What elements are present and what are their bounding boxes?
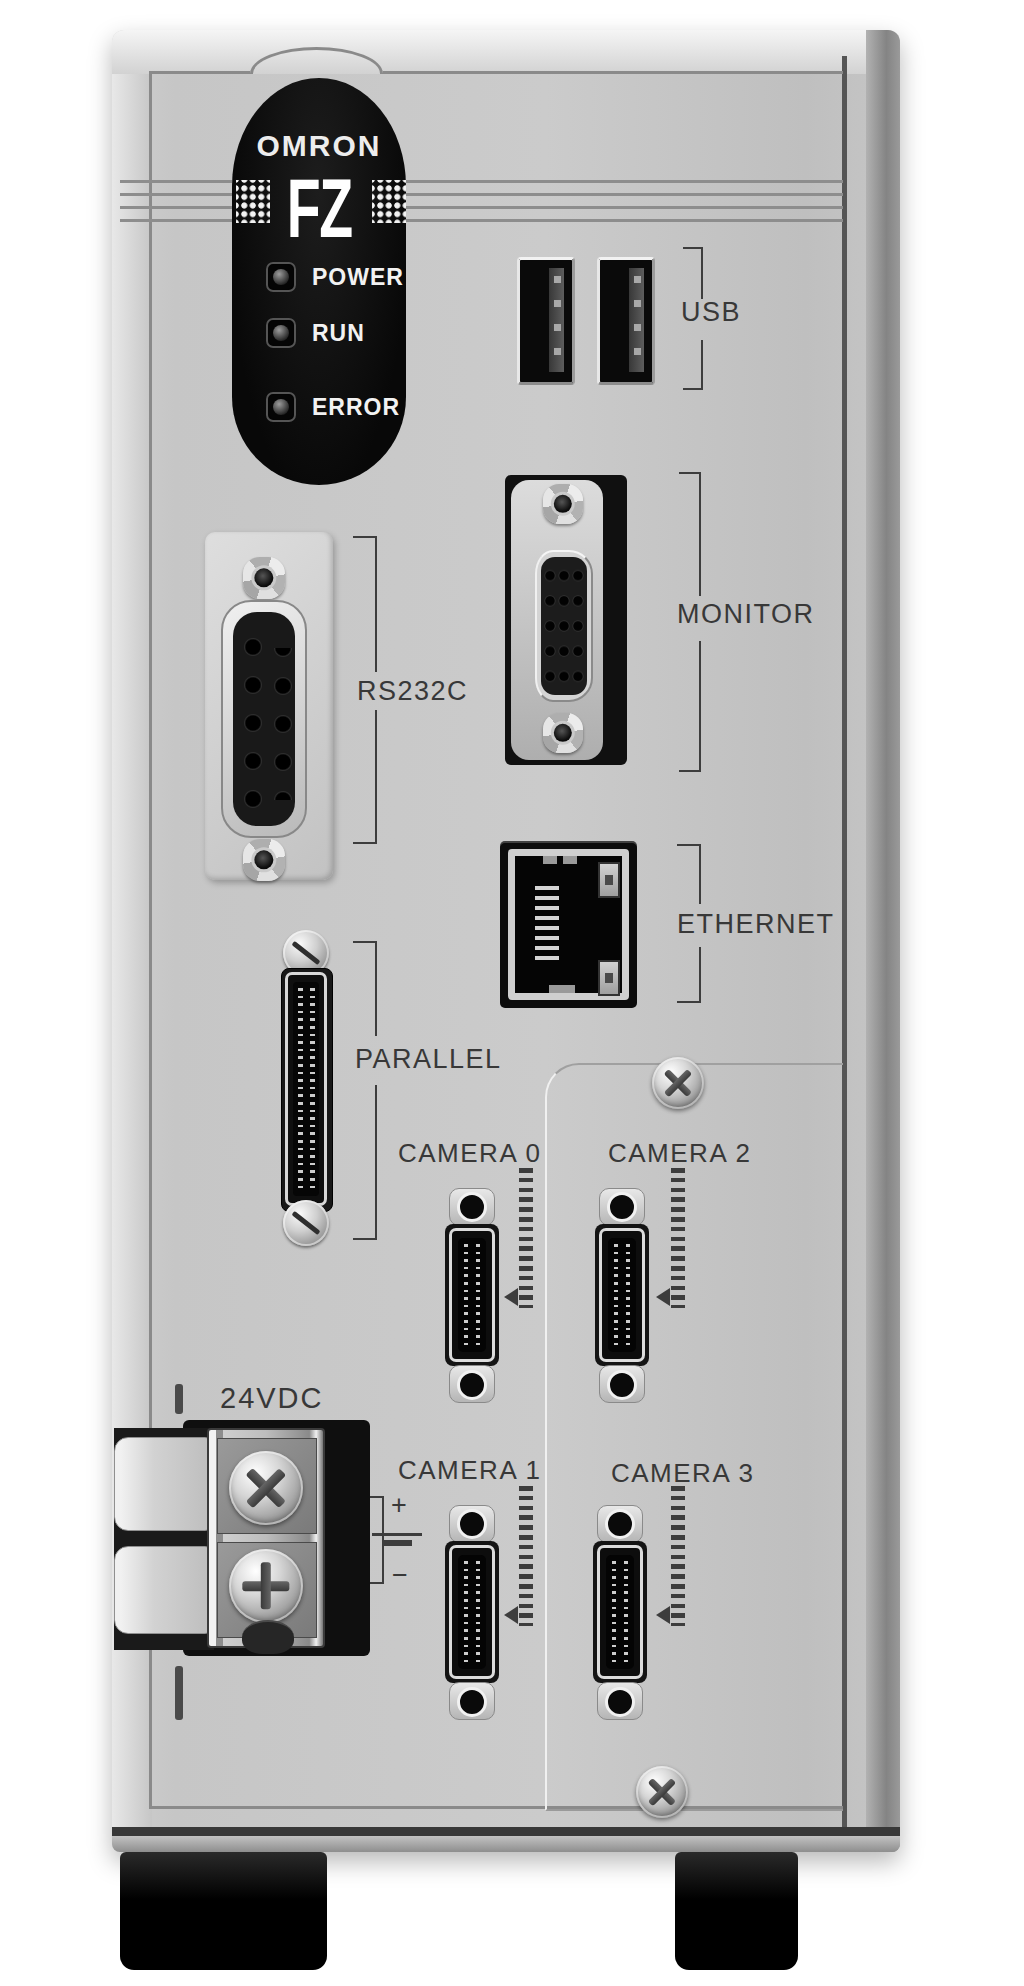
camera-2-label: CAMERA 2 — [608, 1140, 752, 1166]
connector-slot — [458, 1238, 486, 1352]
camera-1-connector — [445, 1505, 499, 1720]
hinge-tick — [175, 1666, 183, 1720]
alignment-arrow-icon — [504, 1288, 518, 1306]
error-led-icon — [266, 392, 296, 422]
rj45-led-dot — [605, 973, 613, 983]
connector-pins — [626, 1244, 630, 1346]
screw-hole-icon — [605, 1687, 635, 1717]
connector-slot — [608, 1238, 636, 1352]
screw-hole-icon — [457, 1192, 487, 1222]
vga-pin-holes — [543, 563, 585, 689]
rj45-latch-tab — [563, 856, 577, 864]
camera-plate — [545, 1063, 843, 1811]
hex-jackscrew-icon — [543, 484, 583, 524]
screw-hole-icon — [605, 1509, 635, 1539]
dot-pattern-icon — [236, 180, 270, 223]
battery-polarity-icon — [370, 1582, 384, 1584]
speed-line — [406, 180, 843, 183]
alignment-arrow-icon — [656, 1606, 670, 1624]
alignment-arrow-icon — [656, 1288, 670, 1306]
polarity-minus-label: − — [392, 1562, 409, 1589]
parallel-label: PARALLEL — [355, 1046, 502, 1073]
speed-line — [120, 180, 232, 183]
rs232c-bracket-tick — [353, 842, 377, 844]
chassis-top-band — [112, 30, 900, 74]
parallel-pins — [298, 988, 303, 1188]
ethernet-bracket-tick — [677, 1001, 701, 1003]
slot-screw-icon — [283, 1200, 329, 1246]
screw-hole-icon — [607, 1370, 637, 1400]
screw-hole-icon — [607, 1192, 637, 1222]
db9-pin-holes-col4 — [272, 648, 294, 800]
ethernet-bracket-line — [699, 947, 701, 1003]
rs232c-bracket-line — [375, 536, 377, 672]
photo-omron-fz-rear-panel: OMRON FZ POWER RUN ERROR USB MONITOR RS2… — [0, 0, 1024, 1986]
parallel-slot — [293, 982, 319, 1196]
run-led-label: RUN — [312, 322, 365, 345]
speed-line — [120, 206, 232, 209]
connector-pins — [476, 1561, 480, 1663]
usb-bracket-tick — [683, 388, 703, 390]
parallel-bracket-tick — [353, 941, 377, 943]
error-led-label: ERROR — [312, 396, 400, 419]
alignment-arrow-icon — [504, 1606, 518, 1624]
bottom-band — [112, 1836, 900, 1852]
battery-short-line-icon — [384, 1540, 412, 1546]
camera-3-connector — [593, 1505, 647, 1720]
rj45-pins — [535, 886, 559, 966]
rj45-led-dot — [605, 875, 613, 885]
camera-3-label: CAMERA 3 — [611, 1460, 755, 1486]
monitor-bracket-tick — [679, 770, 701, 772]
power-label: 24VDC — [220, 1384, 324, 1413]
usb-contacts — [554, 276, 561, 364]
hinge-block — [114, 1437, 213, 1531]
speed-line — [406, 219, 843, 222]
phillips-screw-icon — [652, 1057, 704, 1109]
connector-pins — [624, 1561, 628, 1663]
usb-contacts — [634, 276, 641, 364]
screw-hole-icon — [457, 1687, 487, 1717]
hex-jackscrew-icon — [543, 713, 583, 753]
speed-line — [406, 193, 843, 196]
monitor-bracket-line — [699, 641, 701, 772]
usb-bracket-line — [701, 247, 703, 299]
rs232c-label: RS232C — [357, 678, 468, 705]
parallel-bracket-tick — [353, 1238, 377, 1240]
rs232c-bracket-line — [375, 710, 377, 844]
power-led-icon — [266, 262, 296, 292]
alignment-strip-icon — [671, 1486, 685, 1626]
camera-1-label: CAMERA 1 — [398, 1457, 542, 1483]
usb-label: USB — [681, 299, 741, 326]
rj45-latch-tab — [549, 985, 575, 993]
run-led-icon — [266, 318, 296, 348]
screw-hole-icon — [457, 1509, 487, 1539]
alignment-strip-icon — [671, 1168, 685, 1308]
rubber-foot — [675, 1852, 798, 1970]
rs232c-bracket-tick — [353, 536, 377, 538]
rj45-led-window — [598, 960, 620, 996]
speed-line — [120, 193, 232, 196]
outline-top-right — [383, 71, 843, 74]
monitor-bracket-tick — [679, 472, 701, 474]
connector-slot — [606, 1555, 634, 1669]
connector-pins — [464, 1561, 468, 1663]
parallel-bracket-line — [375, 941, 377, 1036]
speed-line — [406, 206, 843, 209]
connector-pins — [614, 1244, 618, 1346]
db9-pin-holes-col5 — [242, 628, 264, 818]
connector-pins — [612, 1561, 616, 1663]
parallel-pins — [310, 988, 315, 1188]
brand-label: OMRON — [232, 131, 406, 161]
usb-bracket-line — [701, 340, 703, 390]
alignment-strip-icon — [519, 1486, 533, 1626]
terminal-screw-plus-icon — [229, 1451, 303, 1525]
hinge-tick — [175, 1384, 183, 1414]
usb-port-1 — [517, 257, 575, 385]
phillips-screw-icon — [636, 1766, 688, 1818]
connector-pins — [476, 1244, 480, 1346]
power-led-label: POWER — [312, 266, 404, 289]
hex-jackscrew-icon — [243, 839, 285, 881]
camera-2-connector — [595, 1188, 649, 1403]
dot-pattern-icon — [372, 180, 406, 223]
model-label-text: FZ — [286, 166, 351, 250]
battery-long-line-icon — [372, 1533, 422, 1536]
ethernet-bracket-line — [699, 844, 701, 904]
terminal-screw-minus-icon — [229, 1549, 303, 1623]
bottom-groove — [112, 1827, 900, 1836]
alignment-strip-icon — [519, 1168, 533, 1308]
rubber-foot — [120, 1852, 327, 1970]
usb-bracket-tick — [683, 247, 703, 249]
parallel-bracket-line — [375, 1085, 377, 1240]
monitor-bracket-line — [699, 472, 701, 596]
hinge-block — [114, 1546, 213, 1634]
outline-top-left — [150, 71, 250, 74]
ethernet-label: ETHERNET — [677, 911, 835, 938]
chassis-right-edge — [866, 30, 900, 1852]
screw-hole-icon — [457, 1370, 487, 1400]
monitor-label: MONITOR — [677, 601, 815, 628]
rj45-latch-tab — [543, 856, 557, 864]
usb-port-2 — [597, 257, 655, 385]
hex-jackscrew-icon — [243, 557, 285, 599]
connector-pins — [464, 1244, 468, 1346]
connector-slot — [458, 1555, 486, 1669]
cable-barrel — [242, 1620, 294, 1654]
camera-0-connector — [445, 1188, 499, 1403]
rj45-led-window — [598, 862, 620, 898]
ethernet-bracket-tick — [677, 844, 701, 846]
speed-line — [120, 219, 232, 222]
polarity-plus-label: + — [391, 1492, 408, 1519]
camera-0-label: CAMERA 0 — [398, 1140, 542, 1166]
